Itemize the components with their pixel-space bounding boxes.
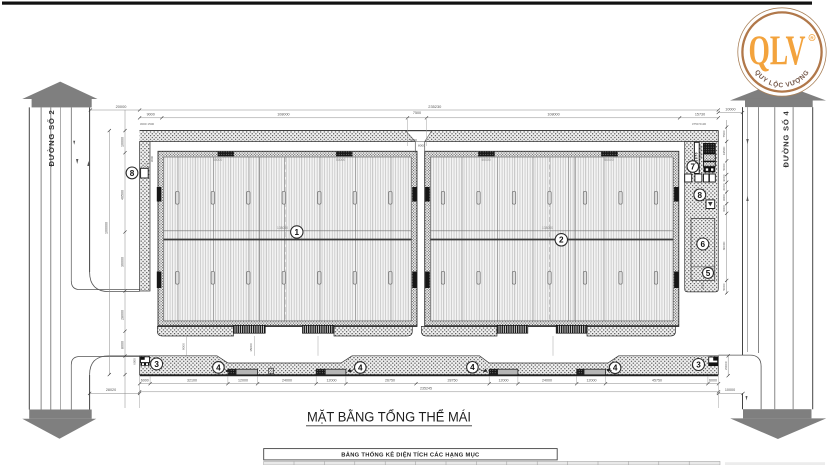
svg-text:4: 4: [470, 363, 475, 372]
svg-text:138000: 138000: [542, 226, 553, 230]
svg-text:26750: 26750: [385, 378, 395, 382]
svg-text:30000: 30000: [722, 241, 726, 250]
svg-text:9000: 9000: [147, 113, 155, 117]
svg-text:6000: 6000: [722, 183, 726, 190]
svg-text:235245: 235245: [420, 387, 432, 391]
svg-text:24000: 24000: [542, 378, 552, 382]
svg-text:9000: 9000: [722, 174, 726, 181]
svg-text:7500: 7500: [722, 130, 726, 137]
svg-text:15000: 15000: [249, 343, 253, 352]
svg-text:MẶT BẰNG TỔNG THỂ MÁI: MẶT BẰNG TỔNG THỂ MÁI: [307, 408, 471, 426]
svg-text:50000: 50000: [336, 158, 345, 162]
svg-text:19500: 19500: [722, 146, 726, 155]
svg-text:4: 4: [216, 363, 221, 372]
svg-text:6000: 6000: [701, 282, 705, 289]
svg-text:100000: 100000: [105, 222, 109, 234]
svg-text:50000: 50000: [213, 158, 222, 162]
svg-text:3: 3: [154, 360, 159, 369]
svg-text:10000: 10000: [120, 137, 124, 147]
svg-text:28020: 28020: [106, 388, 116, 392]
svg-text:3000: 3000: [150, 155, 154, 162]
svg-text:12000: 12000: [587, 378, 597, 382]
svg-text:3000 1500: 3000 1500: [140, 122, 155, 126]
svg-text:6000: 6000: [410, 138, 417, 142]
svg-text:5: 5: [706, 269, 711, 278]
svg-text:10000: 10000: [725, 107, 735, 111]
svg-text:10000: 10000: [725, 388, 735, 392]
svg-text:12000: 12000: [499, 378, 509, 382]
svg-text:32100: 32100: [187, 378, 197, 382]
svg-text:36000: 36000: [120, 257, 124, 267]
svg-text:QLV: QLV: [749, 29, 806, 75]
svg-text:108000: 108000: [277, 113, 289, 117]
svg-text:BẢNG THỐNG KÊ DIỆN TÍCH CÁC HẠ: BẢNG THỐNG KÊ DIỆN TÍCH CÁC HẠNG MỤC: [341, 450, 480, 458]
svg-text:5000: 5000: [722, 283, 726, 290]
svg-text:24000: 24000: [282, 378, 292, 382]
svg-text:6000: 6000: [709, 378, 717, 382]
svg-text:3: 3: [696, 360, 701, 369]
svg-text:1: 1: [295, 228, 300, 237]
svg-text:15730: 15730: [695, 113, 705, 117]
svg-text:28000: 28000: [120, 310, 124, 320]
svg-text:235230: 235230: [428, 104, 442, 109]
svg-text:ĐƯỜNG SỐ 2: ĐƯỜNG SỐ 2: [46, 109, 56, 166]
svg-text:9000: 9000: [722, 194, 726, 201]
svg-text:3750 5130: 3750 5130: [692, 122, 707, 126]
svg-text:2: 2: [559, 236, 564, 245]
svg-text:7500: 7500: [413, 111, 421, 115]
svg-text:6000: 6000: [132, 358, 136, 365]
svg-text:5000: 5000: [722, 163, 726, 170]
svg-text:46500: 46500: [120, 190, 124, 200]
svg-text:4: 4: [613, 364, 618, 373]
svg-text:108000: 108000: [547, 113, 559, 117]
svg-text:20000: 20000: [116, 104, 128, 109]
svg-text:6: 6: [701, 240, 706, 249]
svg-text:8: 8: [698, 191, 703, 200]
svg-text:6000: 6000: [141, 378, 149, 382]
svg-text:12000: 12000: [327, 378, 337, 382]
svg-text:ĐƯỜNG SỐ 4: ĐƯỜNG SỐ 4: [781, 110, 791, 167]
svg-text:50000: 50000: [604, 158, 613, 162]
svg-text:21870: 21870: [694, 152, 698, 164]
svg-text:8000: 8000: [418, 144, 425, 148]
svg-text:3000: 3000: [722, 205, 726, 212]
svg-text:45750: 45750: [652, 378, 662, 382]
svg-text:8: 8: [130, 169, 135, 178]
svg-text:50000: 50000: [481, 158, 490, 162]
svg-text:8000: 8000: [120, 341, 124, 349]
svg-text:20000: 20000: [724, 361, 728, 370]
svg-text:8000: 8000: [181, 343, 185, 350]
svg-text:4: 4: [358, 363, 363, 372]
svg-text:8125 3125: 8125 3125: [699, 145, 703, 159]
svg-text:12000: 12000: [238, 378, 248, 382]
svg-text:138000: 138000: [277, 226, 288, 230]
svg-text:28750: 28750: [448, 378, 458, 382]
